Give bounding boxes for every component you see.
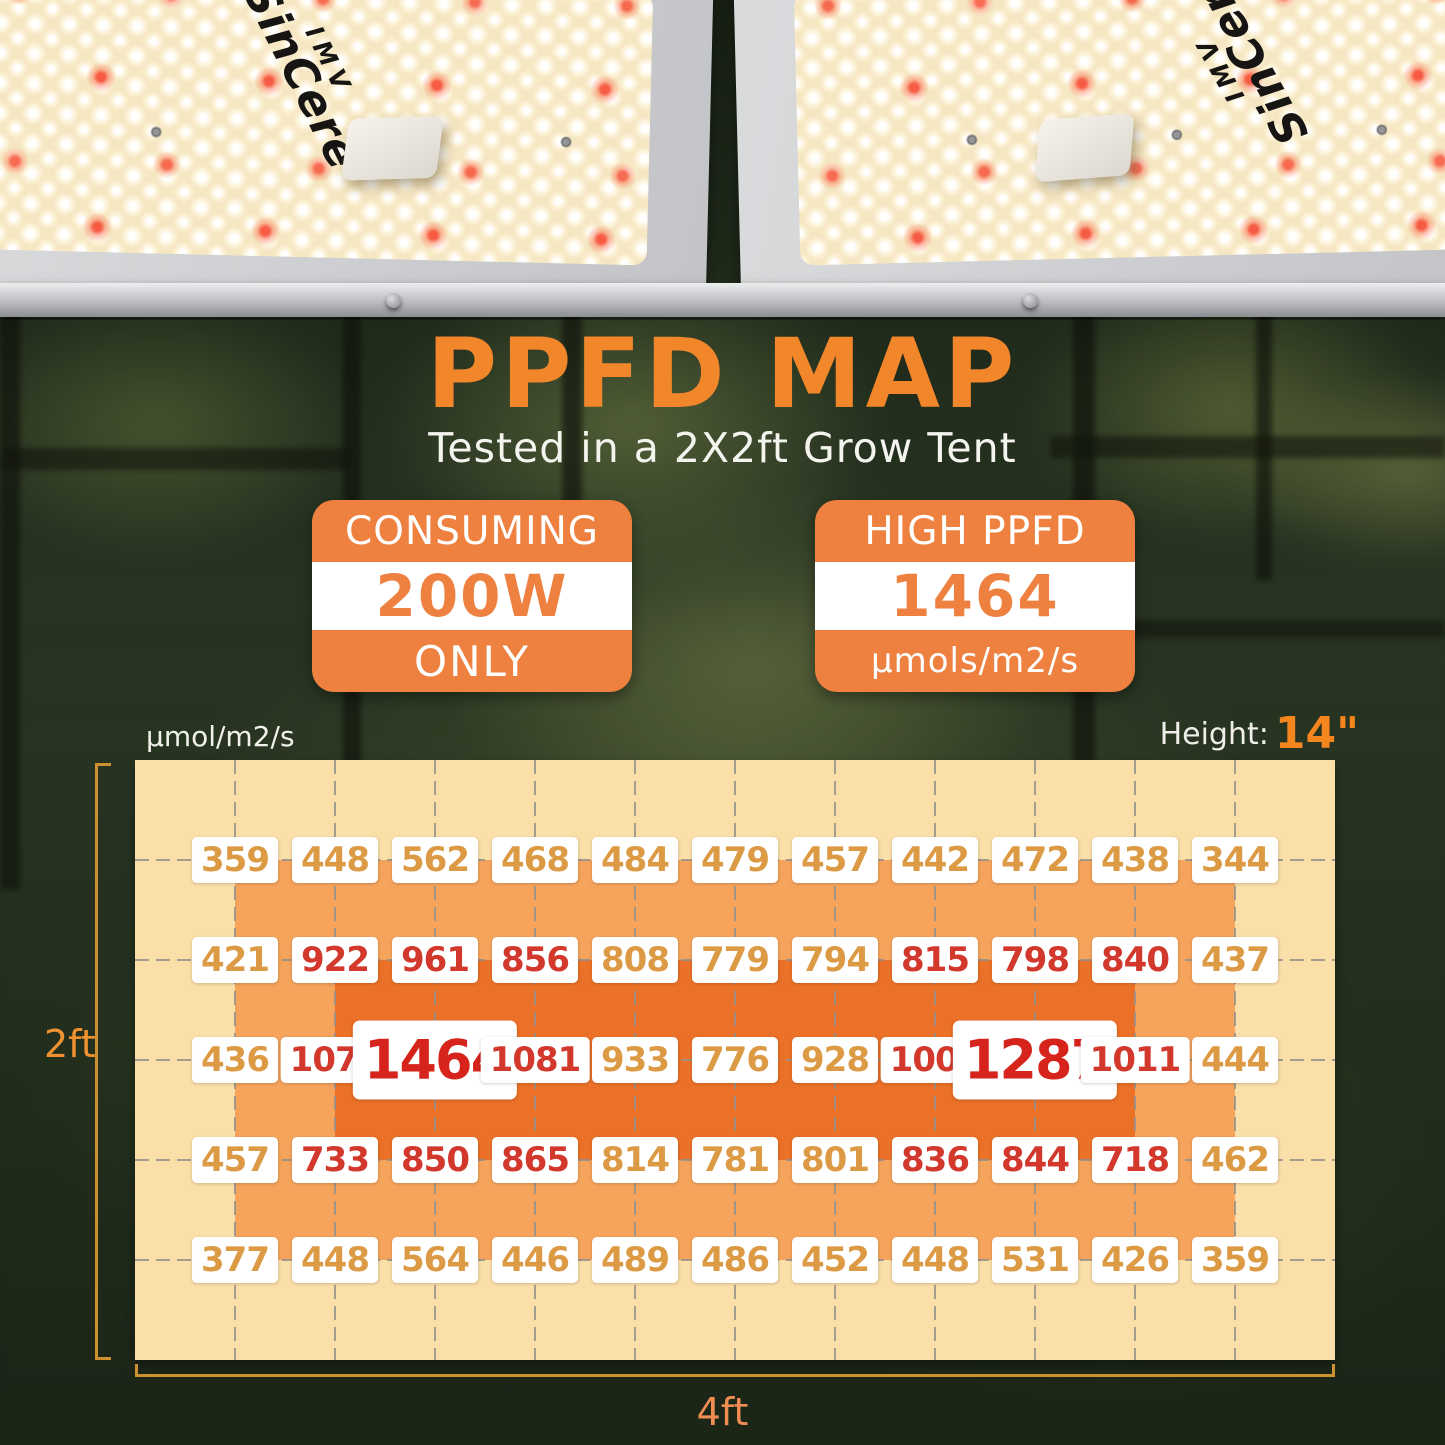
ppfd-value-chip: 776 (692, 1037, 778, 1083)
ppfd-value-chip: 438 (1092, 837, 1178, 883)
driver-box (341, 116, 444, 180)
height-label: Height:14" (1160, 708, 1359, 759)
ppfd-value-chip: 781 (692, 1137, 778, 1183)
ppfd-value-chip: 844 (992, 1137, 1078, 1183)
unit-axis-label: μmol/m2/s (146, 720, 295, 753)
hanging-hook (1023, 293, 1038, 308)
ppfd-value-chip: 922 (292, 937, 378, 983)
bottom-dimension-line (135, 1374, 1335, 1377)
fixture-frame-bar (0, 283, 1445, 317)
ppfd-value-chip: 448 (892, 1237, 978, 1283)
ppfd-value-chip: 359 (1192, 1237, 1278, 1283)
ppfd-value-chip: 933 (592, 1037, 678, 1083)
left-dimension-label: 2ft (44, 1022, 96, 1066)
ppfd-value-chip: 794 (792, 937, 878, 983)
ppfd-value-chip: 564 (392, 1237, 478, 1283)
ppfd-value-chip: 928 (792, 1037, 878, 1083)
ppfd-value-chip: 426 (1092, 1237, 1178, 1283)
height-value: 14" (1275, 708, 1359, 759)
ppfd-value-chip: 808 (592, 937, 678, 983)
consuming-badge-label: CONSUMING (312, 500, 632, 562)
hanging-hook (386, 293, 401, 308)
ppfd-value-chip: 448 (292, 1237, 378, 1283)
ppfd-value-chip: 446 (492, 1237, 578, 1283)
ppfd-value-chip: 377 (192, 1237, 278, 1283)
driver-box (1035, 113, 1135, 182)
high-ppfd-badge-label: HIGH PPFD (815, 500, 1135, 562)
ppfd-value-chip: 798 (992, 937, 1078, 983)
ppfd-value-chip: 472 (992, 837, 1078, 883)
bottom-dimension-tick-left (135, 1364, 138, 1377)
ppfd-value-chip: 442 (892, 837, 978, 883)
ppfd-value-chip: 359 (192, 837, 278, 883)
ppfd-heatmap: 3594485624684844794574424724383444219229… (135, 760, 1335, 1360)
ppfd-value-chip: 779 (692, 937, 778, 983)
height-label-text: Height: (1160, 717, 1269, 752)
led-panel-left: IMV SinCere (0, 0, 714, 305)
ppfd-value-chip: 489 (592, 1237, 678, 1283)
ppfd-value-chip: 457 (792, 837, 878, 883)
ppfd-value-chip: 344 (1192, 837, 1278, 883)
ppfd-value-chip: 815 (892, 937, 978, 983)
page-title: PPFD MAP (0, 318, 1445, 430)
ppfd-value-chip: 457 (192, 1137, 278, 1183)
ppfd-value-chip: 840 (1092, 937, 1178, 983)
bottom-dimension-label: 4ft (0, 1390, 1445, 1434)
ppfd-value-chip: 437 (1192, 937, 1278, 983)
ppfd-value-chip: 479 (692, 837, 778, 883)
ppfd-value-chip: 1011 (1081, 1037, 1190, 1083)
consuming-badge-value: 200W (312, 562, 632, 630)
ppfd-value-chip: 814 (592, 1137, 678, 1183)
bottom-dimension-tick-right (1332, 1364, 1335, 1377)
ppfd-value-chip: 865 (492, 1137, 578, 1183)
ppfd-value-chip: 850 (392, 1137, 478, 1183)
ppfd-value-chip: 444 (1192, 1037, 1278, 1083)
left-dimension-tick-bottom (95, 1357, 111, 1360)
ppfd-value-chip: 718 (1092, 1137, 1178, 1183)
ppfd-value-chip: 961 (392, 937, 478, 983)
ppfd-value-chip: 421 (192, 937, 278, 983)
ppfd-value-chip: 562 (392, 837, 478, 883)
ppfd-value-chip: 468 (492, 837, 578, 883)
high-ppfd-badge-value: 1464 (815, 562, 1135, 630)
high-ppfd-badge-unit: μmols/m2/s (815, 630, 1135, 692)
led-light-fixture: IMV SinCere IMV SinCere (0, 0, 1445, 320)
ppfd-value-chip: 452 (792, 1237, 878, 1283)
ppfd-value-chip: 486 (692, 1237, 778, 1283)
ppfd-value-chip: 733 (292, 1137, 378, 1183)
ppfd-value-chip: 801 (792, 1137, 878, 1183)
consuming-badge: CONSUMING 200W ONLY (312, 500, 632, 692)
ppfd-value-chip: 448 (292, 837, 378, 883)
consuming-badge-suffix: ONLY (312, 630, 632, 692)
ppfd-value-chip: 484 (592, 837, 678, 883)
page-subtitle: Tested in a 2X2ft Grow Tent (0, 424, 1445, 472)
ppfd-value-chip: 1081 (481, 1037, 590, 1083)
high-ppfd-badge: HIGH PPFD 1464 μmols/m2/s (815, 500, 1135, 692)
ppfd-value-chip: 531 (992, 1237, 1078, 1283)
ppfd-value-chip: 836 (892, 1137, 978, 1183)
ppfd-value-chip: 436 (192, 1037, 278, 1083)
led-panel-right: IMV SinCere (733, 0, 1445, 305)
left-dimension-tick-top (95, 763, 111, 766)
ppfd-value-chip: 856 (492, 937, 578, 983)
ppfd-map-poster: IMV SinCere IMV SinCere PPFD MAP Tested … (0, 0, 1445, 1445)
ppfd-value-chip: 462 (1192, 1137, 1278, 1183)
